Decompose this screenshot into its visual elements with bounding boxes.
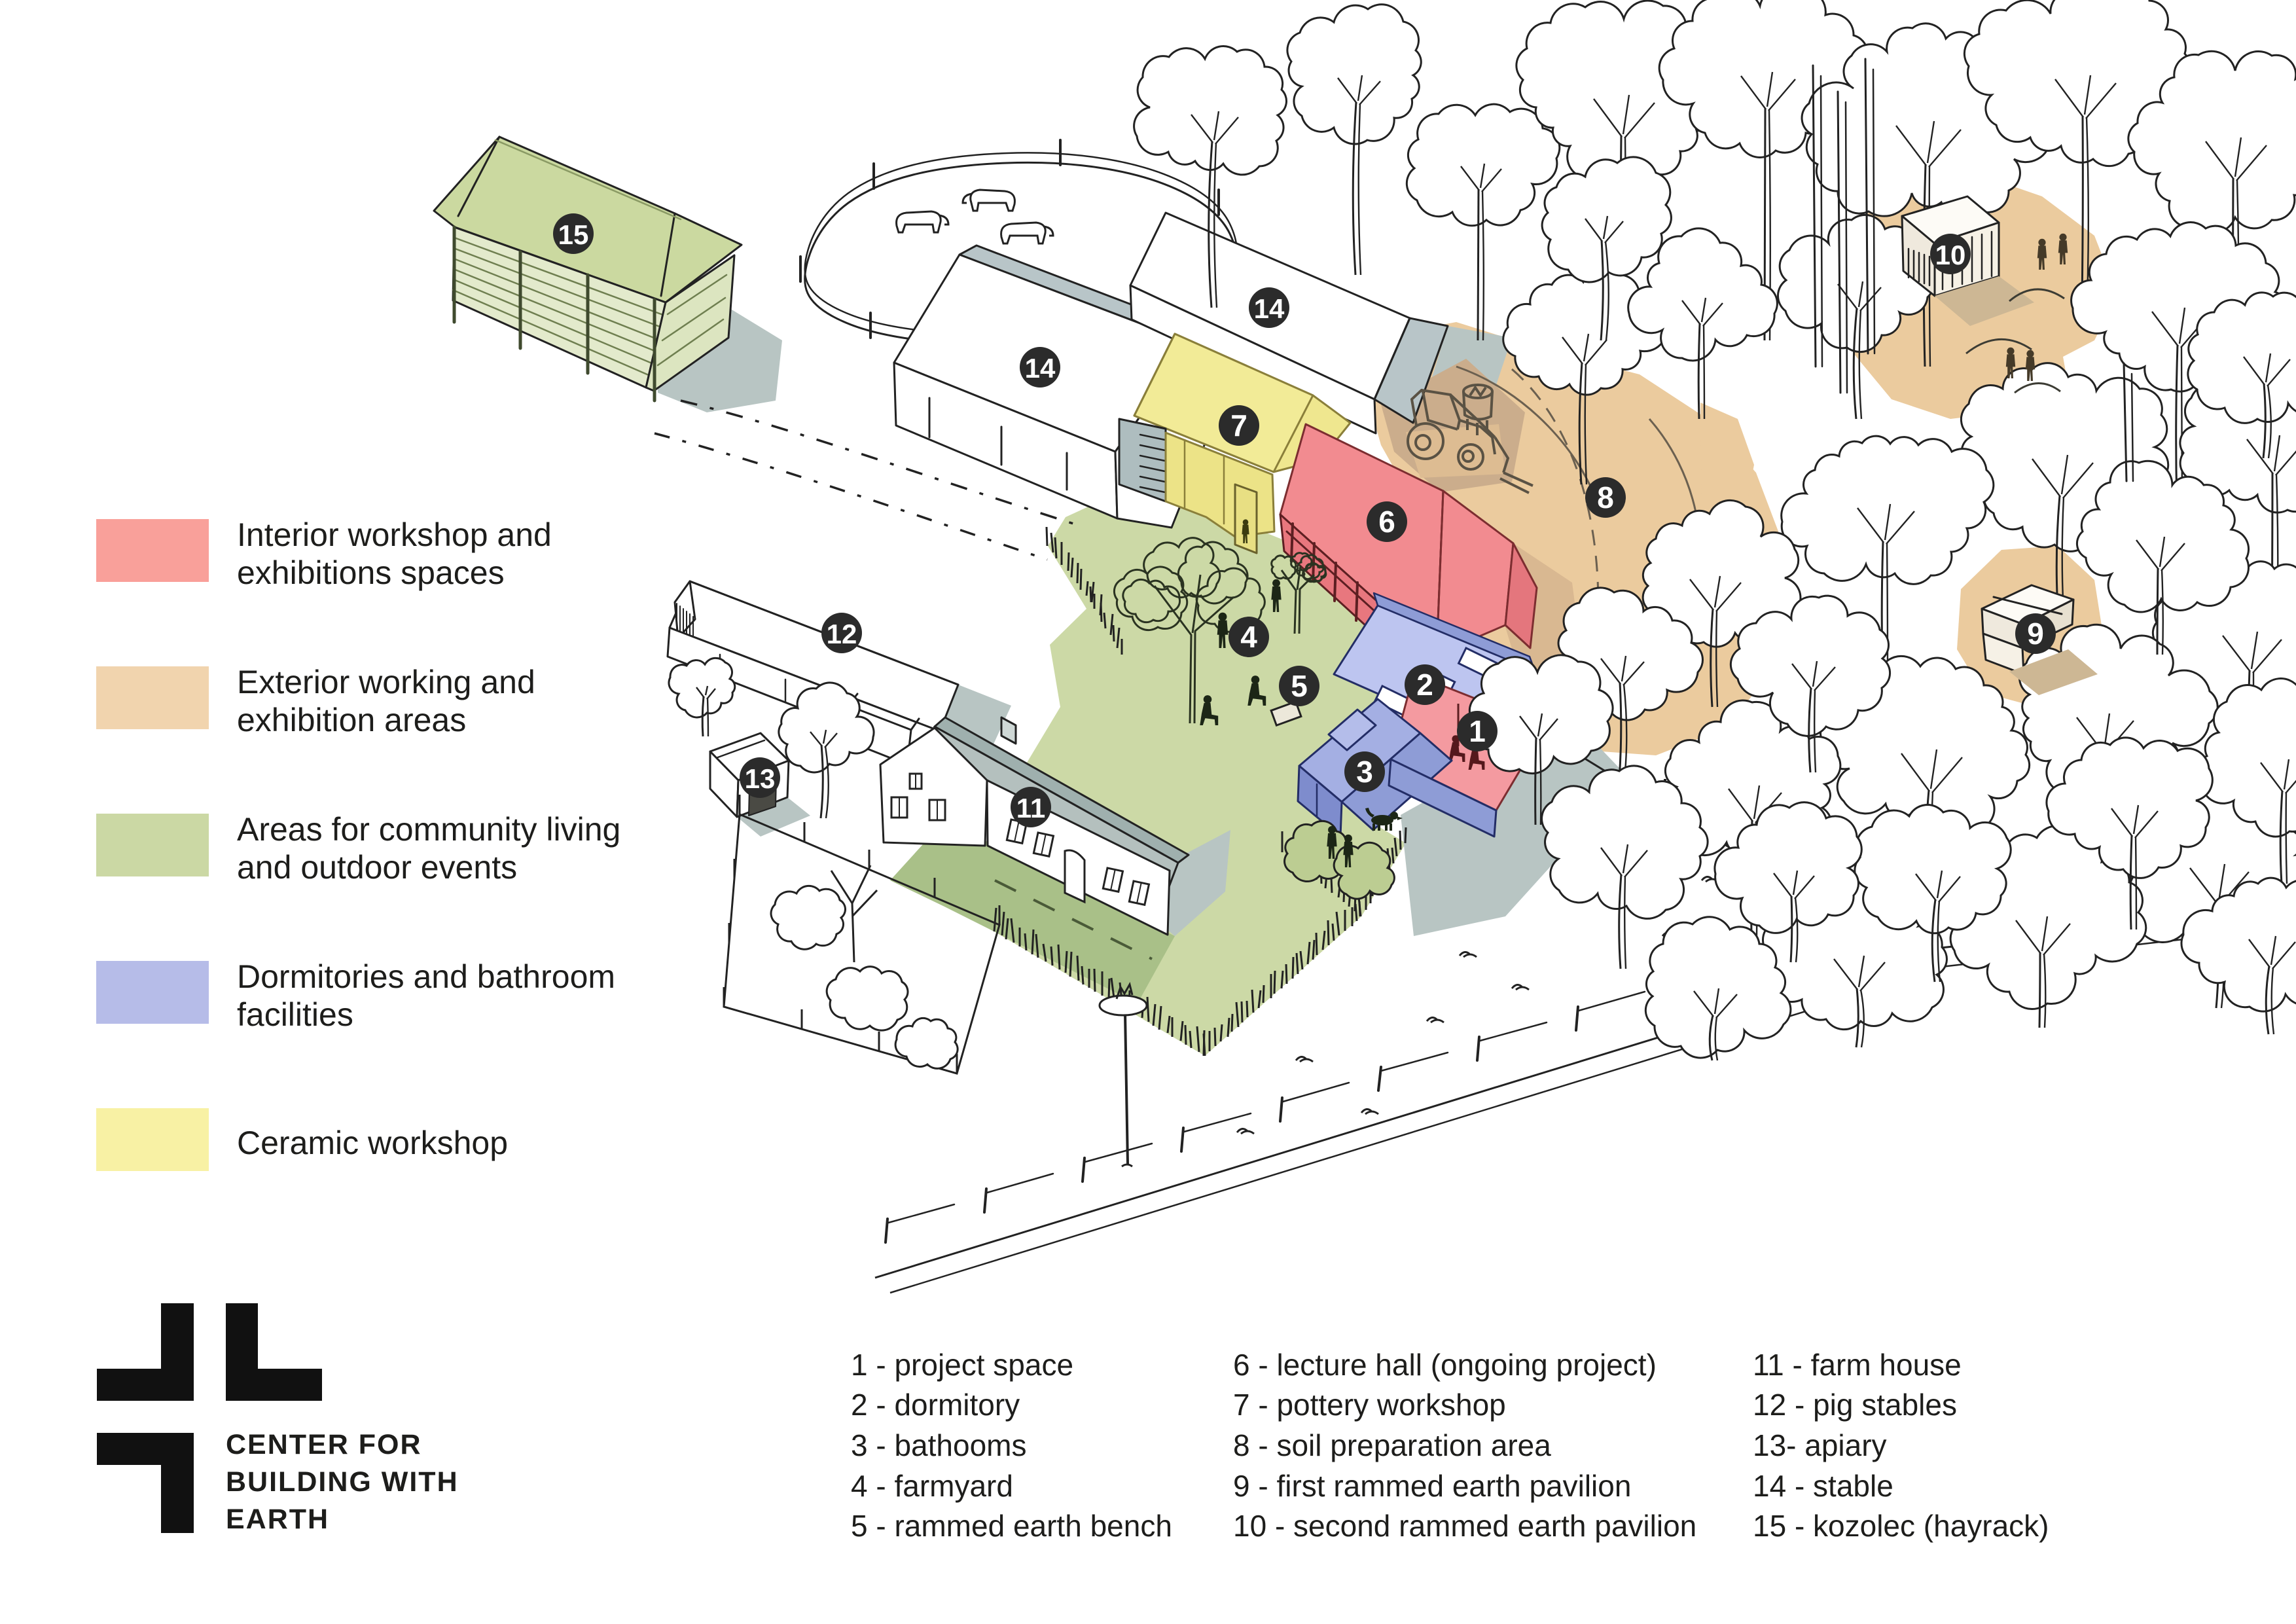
svg-text:1: 1 [1469,714,1486,748]
svg-text:exhibitions spaces: exhibitions spaces [237,554,505,591]
svg-text:11: 11 [1016,793,1045,823]
svg-text:CENTER FOR: CENTER FOR [226,1429,422,1460]
svg-text:14: 14 [1025,353,1056,384]
svg-text:10 - second rammed earth pavil: 10 - second rammed earth pavilion [1233,1509,1696,1543]
svg-text:Exterior working and: Exterior working and [237,664,535,700]
svg-text:13- apiary: 13- apiary [1753,1428,1887,1462]
svg-text:15: 15 [558,219,589,250]
svg-text:13: 13 [745,763,776,794]
svg-text:11 - farm house: 11 - farm house [1753,1348,1962,1382]
svg-text:6 - lecture hall (ongoing proj: 6 - lecture hall (ongoing project) [1233,1348,1657,1382]
svg-text:8: 8 [1597,480,1614,514]
svg-text:3 - bathooms: 3 - bathooms [851,1428,1026,1462]
svg-text:4: 4 [1240,620,1257,654]
svg-text:8 - soil preparation area: 8 - soil preparation area [1233,1428,1551,1462]
svg-text:9 - first rammed earth pavilio: 9 - first rammed earth pavilion [1233,1469,1631,1503]
svg-text:facilities: facilities [237,996,353,1033]
svg-text:7 - pottery workshop: 7 - pottery workshop [1233,1388,1506,1422]
svg-text:and outdoor events: and outdoor events [237,849,517,886]
svg-text:14: 14 [1254,293,1285,324]
svg-text:5: 5 [1291,669,1308,703]
svg-text:BUILDING WITH: BUILDING WITH [226,1466,459,1498]
svg-text:12 - pig stables: 12 - pig stables [1753,1388,1957,1422]
svg-text:exhibition areas: exhibition areas [237,702,466,738]
svg-text:Ceramic workshop: Ceramic workshop [237,1125,508,1161]
svg-text:15 - kozolec (hayrack): 15 - kozolec (hayrack) [1753,1509,2049,1543]
svg-text:Interior workshop and: Interior workshop and [237,516,552,553]
svg-text:10: 10 [1935,240,1966,270]
svg-text:14 - stable: 14 - stable [1753,1469,1893,1503]
svg-text:2 - dormitory: 2 - dormitory [851,1388,1020,1422]
svg-text:9: 9 [2027,617,2044,651]
svg-text:4 - farmyard: 4 - farmyard [851,1469,1013,1503]
svg-text:5 - rammed earth bench: 5 - rammed earth bench [851,1509,1172,1543]
svg-text:Areas for community living: Areas for community living [237,811,620,848]
svg-text:Dormitories and bathroom: Dormitories and bathroom [237,958,615,995]
svg-text:3: 3 [1356,755,1373,789]
svg-text:2: 2 [1416,668,1433,702]
svg-text:1 - project space: 1 - project space [851,1348,1073,1382]
svg-text:12: 12 [827,619,857,649]
svg-text:EARTH: EARTH [226,1504,329,1535]
svg-text:6: 6 [1378,505,1395,539]
svg-text:7: 7 [1230,408,1247,442]
